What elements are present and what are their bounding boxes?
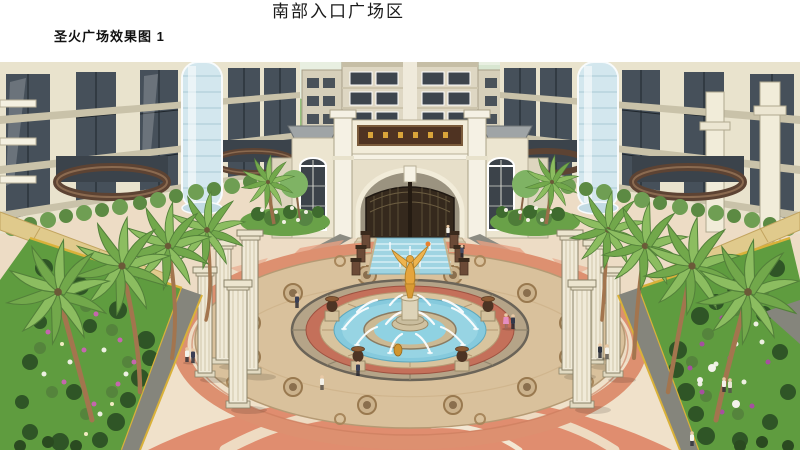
figure-caption: 圣火广场效果图 1 bbox=[54, 26, 165, 45]
page-title: 南部入口广场区 bbox=[272, 0, 405, 22]
presentation-page: 南部入口广场区 圣火广场效果图 1 bbox=[0, 0, 800, 450]
entrance-gate bbox=[240, 110, 580, 250]
rendering-image bbox=[0, 62, 800, 450]
gate-sign-plaque bbox=[358, 126, 462, 145]
